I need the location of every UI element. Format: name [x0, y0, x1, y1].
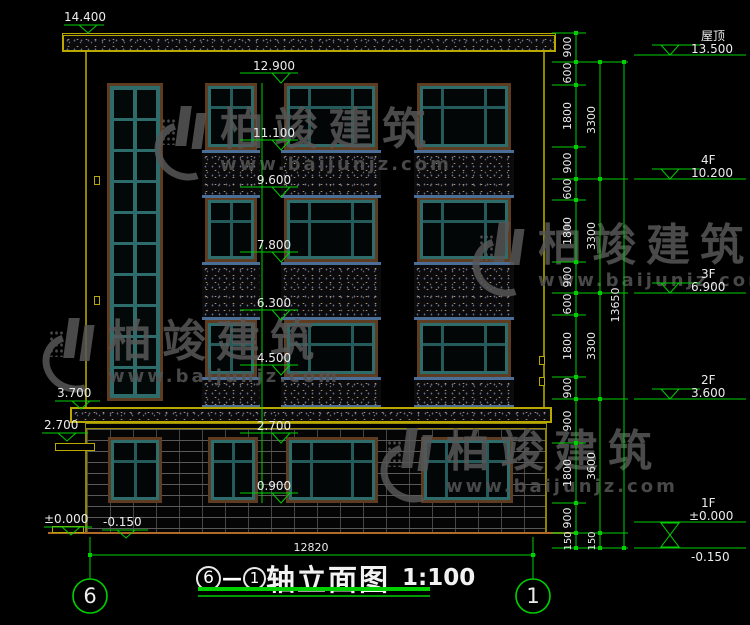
title-underline-thin: [198, 595, 430, 597]
floor-name: 4F: [701, 153, 716, 167]
floor-name: 1F: [701, 496, 716, 510]
dim-value: 900: [561, 37, 574, 58]
dim-value: 1800: [561, 217, 574, 245]
floor-slab-band: [70, 407, 552, 423]
title-underline-thick: [198, 587, 430, 591]
dim-value: 3300: [585, 332, 598, 360]
dim-value: 900: [561, 267, 574, 288]
floor-elevation: 6.900: [691, 280, 725, 294]
dim-value: 1800: [561, 102, 574, 130]
floor-name: 3F: [701, 267, 716, 281]
spandrel-panel: [202, 150, 260, 198]
elevation-drawing-canvas: 柏竣建筑 www.baijunjz.com 柏竣建筑 www.baijunjz.…: [0, 0, 750, 625]
spandrel-panel: [414, 150, 514, 198]
title-text: 轴立面图: [266, 557, 390, 599]
elevation-label: ±0.000: [44, 512, 88, 526]
window-1f-a: [108, 437, 162, 503]
stair-window: [110, 86, 160, 398]
floor-elevation: 10.200: [691, 166, 733, 180]
spandrel-panel: [281, 150, 381, 198]
dim-total-height: 13650: [609, 288, 622, 323]
floor-elevation: 13.500: [691, 42, 733, 56]
window-4f-a: [205, 83, 257, 150]
dim-total-width: 12820: [294, 541, 329, 554]
floor-elevation: 3.600: [691, 386, 725, 400]
dim-value: 1800: [561, 459, 574, 487]
dim-value: 900: [561, 508, 574, 529]
floor-elevation: ±0.000: [689, 509, 733, 523]
elevation-label: 14.400: [64, 10, 106, 24]
dim-value: 3600: [585, 452, 598, 480]
window-4f-c: [417, 83, 511, 150]
dim-value: 150: [563, 531, 574, 550]
window-1f-d: [421, 437, 513, 503]
window-4f-b: [284, 83, 378, 150]
dim-value: 150: [587, 531, 598, 550]
wall-hook: [539, 377, 545, 386]
dim-value: 900: [561, 378, 574, 399]
entry-step: [52, 526, 84, 533]
dim-value: 3300: [585, 106, 598, 134]
dim-value: 3300: [585, 222, 598, 250]
floor-name: 屋顶: [701, 29, 725, 43]
spandrel-panel: [414, 262, 514, 320]
window-1f-b: [208, 437, 258, 503]
spandrel-panel: [281, 377, 381, 408]
dim-value: 1800: [561, 332, 574, 360]
wall-hook: [539, 356, 545, 365]
window-3f-b: [284, 197, 378, 262]
spandrel-panel: [281, 262, 381, 320]
stair-window-frame: [107, 83, 163, 401]
ground-line: [48, 532, 576, 534]
dim-value: 600: [561, 294, 574, 315]
watermark-url: www.baijunjz.com: [538, 270, 750, 291]
window-3f-a: [205, 197, 257, 262]
spandrel-panel: [414, 377, 514, 408]
dim-value: 600: [561, 63, 574, 84]
window-3f-c: [417, 197, 511, 262]
window-2f-b: [284, 320, 378, 377]
dim-value: 600: [561, 179, 574, 200]
canopy-ledge: [55, 443, 95, 451]
dim-value: 900: [561, 411, 574, 432]
wall-hook: [94, 176, 100, 185]
axis-bubble-number: 6: [83, 584, 96, 608]
window-2f-a: [205, 320, 257, 377]
window-1f-c: [286, 437, 378, 503]
floor-name: 2F: [701, 373, 716, 387]
window-2f-c: [417, 320, 511, 377]
watermark-brand: 柏竣建筑: [538, 222, 750, 270]
axis-bubble-number: 1: [526, 584, 539, 608]
spandrel-panel: [202, 262, 260, 320]
drawing-title: 6 — 1 轴立面图 1:100: [196, 557, 475, 599]
dim-value: 900: [561, 153, 574, 174]
roof-slab: [62, 33, 556, 52]
spandrel-panel: [202, 377, 260, 408]
wall-hook: [94, 296, 100, 305]
floor-elevation: -0.150: [691, 550, 730, 564]
